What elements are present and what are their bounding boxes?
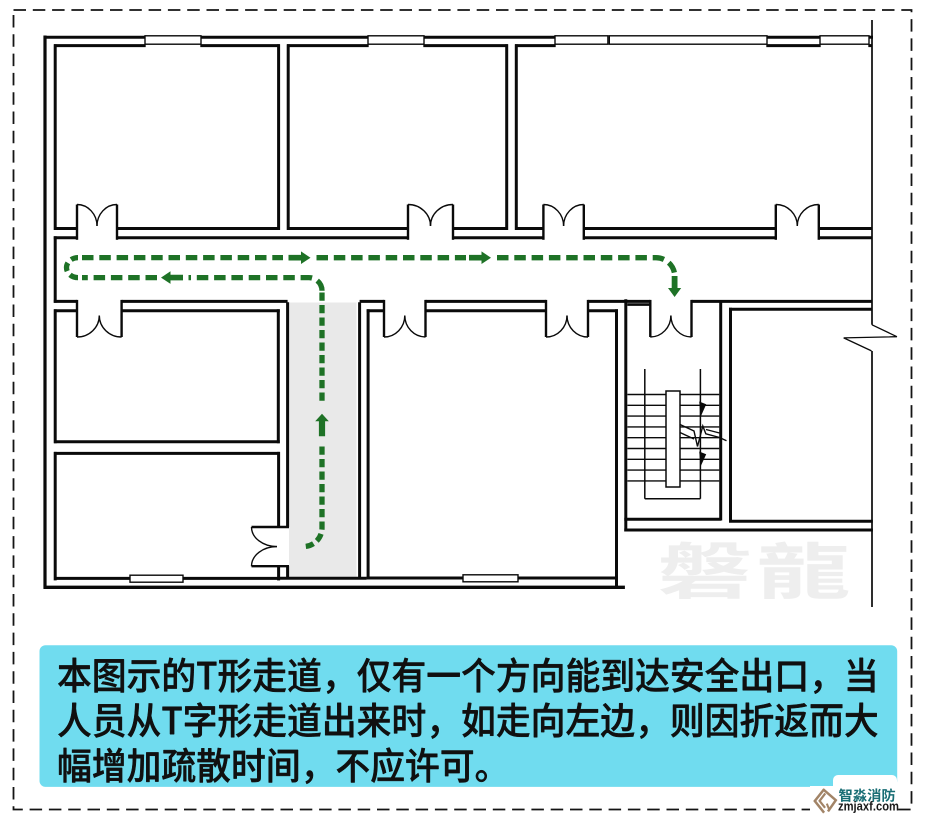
svg-text:zmjaxf.com: zmjaxf.com xyxy=(838,798,899,813)
